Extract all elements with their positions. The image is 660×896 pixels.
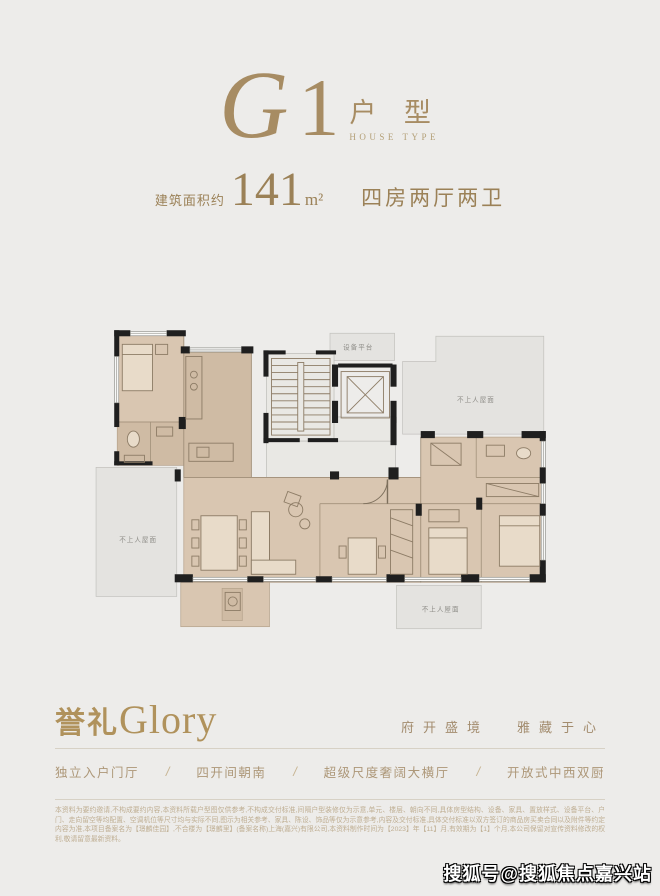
feature-item-4: 开放式中西双厨 [507, 762, 605, 781]
feature-item-1: 独立入户门厅 [55, 762, 139, 781]
feature-item-2: 四开间朝南 [196, 762, 266, 781]
area-value: 141 [231, 168, 303, 212]
area-info: 建筑面积约 141 m² 四房两厅两卫 [0, 168, 660, 212]
roof-label-left: 不上人屋面 [119, 535, 157, 544]
header: G 1 户 型 HOUSE TYPE [0, 62, 660, 148]
brand-name-en: Glory [119, 703, 217, 737]
feature-separator: / [477, 764, 481, 779]
feature-list: 独立入户门厅 / 四开间朝南 / 超级尺度奢阔大横厅 / 开放式中西双厨 [55, 762, 605, 781]
watermark: 搜狐号@搜狐焦点嘉兴站 [443, 860, 652, 886]
floor-plan: 设备平台 不上人屋面 不上人屋面 不上人屋面 [88, 316, 572, 652]
brand-strip: 誉礼 Glory 府开盛境 雅藏于心 [55, 698, 605, 742]
elevator-lobby-area [334, 417, 396, 441]
feature-separator: / [293, 764, 297, 779]
model-letter: G [219, 62, 288, 148]
roof-area-left [96, 467, 177, 596]
feature-separator: / [166, 764, 170, 779]
roof-label-right: 不上人屋面 [457, 395, 495, 404]
disclaimer-text: 本资料为要约邀请,不构成要约内容,本资料所载户型图仅供参考,不构成交付标准,间隔… [55, 806, 605, 844]
house-type-en: HOUSE TYPE [349, 132, 439, 142]
house-type-block: 户 型 HOUSE TYPE [349, 98, 441, 142]
area-prefix: 建筑面积约 [155, 190, 225, 209]
elevator-icon [341, 372, 389, 418]
area-unit: m² [305, 190, 323, 210]
room-layout: 四房两厅两卫 [361, 182, 505, 212]
divider-top [55, 748, 605, 749]
feature-item-3: 超级尺度奢阔大横厅 [324, 762, 450, 781]
brand-name-cn: 誉礼 [55, 698, 119, 742]
model-name: G 1 户 型 HOUSE TYPE [0, 62, 660, 148]
tagline-left: 府开盛境 [401, 717, 489, 736]
floor-plan-drawing: 设备平台 不上人屋面 不上人屋面 不上人屋面 [88, 316, 572, 652]
brand-tagline: 府开盛境 雅藏于心 [401, 717, 605, 736]
house-type-cn: 户 型 [349, 98, 441, 128]
roof-area-top-right [403, 336, 544, 434]
model-number: 1 [298, 68, 339, 148]
brand-logo: 誉礼 Glory [55, 698, 217, 742]
poster-page: G 1 户 型 HOUSE TYPE 建筑面积约 141 m² 四房两厅两卫 [0, 0, 660, 896]
equipment-platform-label: 设备平台 [343, 342, 373, 351]
tagline-right: 雅藏于心 [517, 717, 605, 736]
roof-label-bottom: 不上人屋面 [422, 605, 460, 614]
divider-bottom [55, 799, 605, 800]
